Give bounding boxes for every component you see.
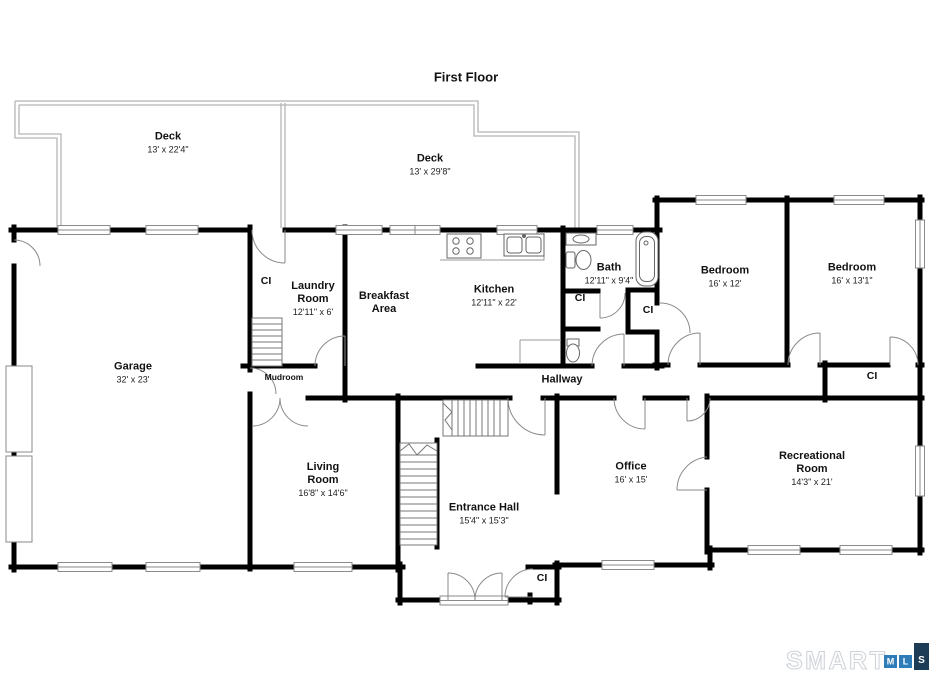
- room-label-recreational: Recreational Room 14'3" x 21': [762, 450, 862, 488]
- room-label-hallway: Hallway: [542, 374, 583, 387]
- room-label-deck-left: Deck 13' x 22'4": [147, 131, 188, 156]
- room-label-bath: Bath 12'11" x 9'4": [585, 262, 634, 287]
- room-label-breakfast: Breakfast Area: [350, 290, 418, 316]
- floor-plan: SMART M L S First Floor Deck 13' x 22'4"…: [0, 0, 930, 676]
- closet-label-bedroom: CI: [867, 370, 878, 382]
- room-label-office: Office 16' x 15': [615, 461, 648, 486]
- room-label-deck-right: Deck 13' x 29'8": [409, 153, 450, 178]
- room-label-kitchen: Kitchen 12'11" x 22': [471, 284, 517, 309]
- closet-label-bath: CI: [575, 292, 586, 304]
- deck-outline: [15, 101, 579, 228]
- page-title: First Floor: [434, 70, 498, 85]
- bath-vanity-icon: [566, 233, 596, 245]
- stove-icon: [447, 234, 481, 258]
- logo-m-letter: M: [887, 657, 895, 667]
- closet-label-entrance: CI: [537, 572, 548, 584]
- floor-plan-svg: SMART M L S: [0, 0, 930, 676]
- logo-s-letter: S: [918, 655, 925, 666]
- kitchen-counter-icon: [520, 340, 561, 364]
- room-label-bedroom-right: Bedroom 16' x 13'1": [828, 262, 876, 287]
- room-label-living: Living Room 16'8" x 14'6": [293, 461, 353, 499]
- smartmls-logo: SMART M L S: [786, 643, 929, 675]
- room-label-garage: Garage 32' x 23': [114, 361, 152, 386]
- room-label-laundry: Laundry Room 12'11" x 6': [281, 280, 345, 318]
- bathtub-icon: [636, 232, 658, 286]
- logo-brand-text: SMART: [786, 647, 887, 675]
- logo-l-letter: L: [903, 657, 909, 667]
- garage-door: [6, 366, 32, 542]
- closet-label-laundry: CI: [261, 275, 272, 287]
- kitchen-sink-icon: [504, 234, 544, 256]
- closet-label-hall: CI: [643, 304, 654, 316]
- room-label-entrance: Entrance Hall 15'4" x 15'3": [447, 502, 522, 527]
- pedestal-sink-icon: [567, 339, 580, 362]
- room-label-mudroom: Mudroom: [265, 372, 304, 382]
- room-label-bedroom-left: Bedroom 16' x 12': [701, 265, 749, 290]
